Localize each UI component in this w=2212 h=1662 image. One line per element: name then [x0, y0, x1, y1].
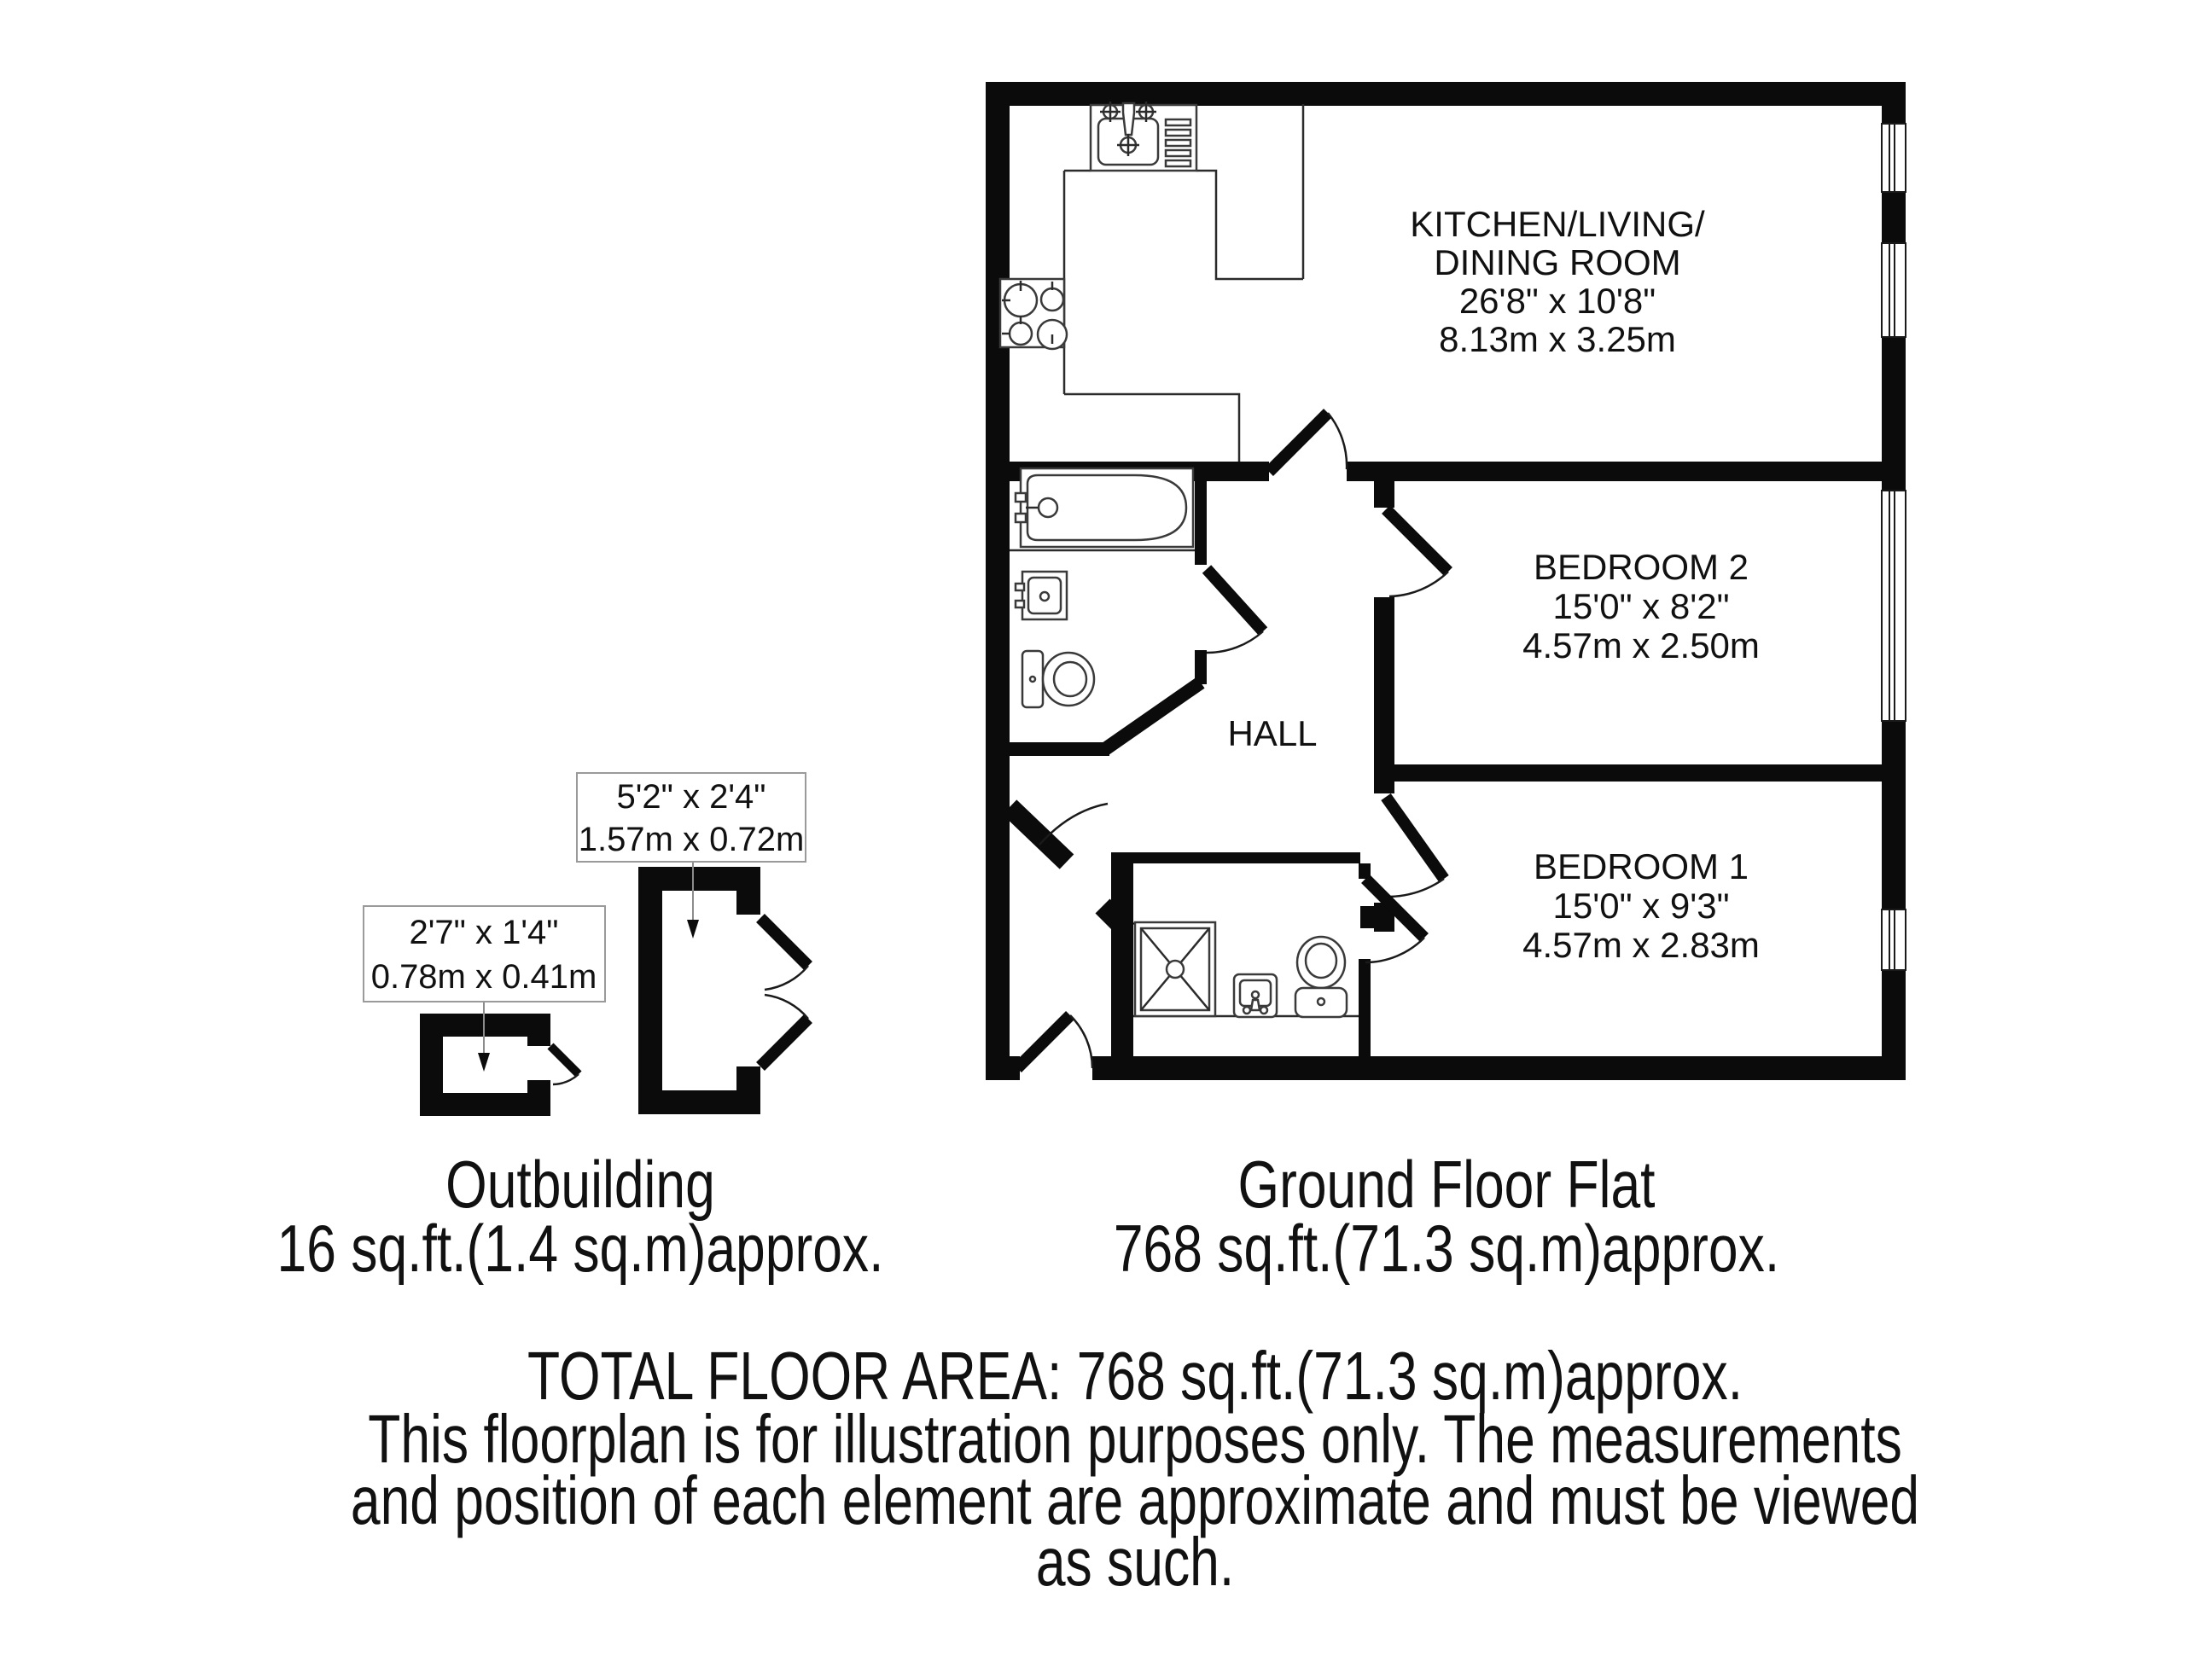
kitchen-dim-imperial: 26'8" x 10'8": [1459, 281, 1656, 321]
wall-right-seg4: [1882, 721, 1906, 909]
bedroom2-label: BEDROOM 2: [1534, 547, 1749, 587]
bedroom2-wall-upper: [1374, 481, 1394, 508]
shower-room-top-wall: [1122, 852, 1360, 863]
bathroom-door-leaf: [1207, 569, 1263, 631]
bath-drain: [1039, 498, 1057, 517]
toilet-bowl-inner: [1054, 662, 1086, 696]
window-icon: [1882, 909, 1906, 970]
counter-edge-5: [1064, 394, 1239, 462]
hob-burner: [1041, 288, 1063, 311]
sink-drainer-bars: [1166, 119, 1190, 166]
bathroom-sink-icon: [1016, 572, 1067, 619]
disclaimer-line3: as such.: [1036, 1525, 1234, 1601]
window-icon: [1882, 491, 1906, 721]
drainer-bar: [1166, 160, 1190, 166]
shower-room-left-wall: [1111, 852, 1133, 1058]
kitchen-label-line1: KITCHEN/LIVING/: [1410, 204, 1705, 244]
counter-edge-3: [1196, 171, 1303, 279]
footer-text-block: TOTAL FLOOR AREA: 768 sq.ft.(71.3 sq.m)a…: [351, 1339, 1919, 1601]
drainer-bar: [1166, 140, 1190, 146]
drainer-bar: [1166, 119, 1190, 125]
entrance-door-leaf: [1017, 1015, 1070, 1068]
bathroom-fixtures: [1010, 468, 1195, 707]
sink-drain: [1252, 991, 1259, 998]
entrance-door-icon: [1017, 1015, 1092, 1068]
wall-bottom: [1092, 1056, 1906, 1080]
kitchen-door-arc: [1328, 413, 1347, 469]
shower-room-right-wall-lower: [1359, 959, 1371, 1058]
wall-bottom-stub: [986, 1056, 1020, 1080]
outb-large-top-wall: [638, 867, 760, 891]
drainer-bar: [1166, 150, 1190, 156]
bedroom2-door-arc: [1389, 572, 1448, 596]
bath-tap: [1016, 493, 1026, 502]
leader-arrowhead: [478, 1053, 490, 1072]
shower-room-door-arc: [1365, 938, 1424, 962]
kitchen-dim-metric: 8.13m x 3.25m: [1439, 319, 1676, 359]
outb-small-dim-imperial: 2'7" x 1'4": [410, 914, 559, 951]
outb-large-bottom-wall: [638, 1090, 760, 1114]
sink-tap-dot: [1260, 1007, 1267, 1014]
wall-right-seg1: [1882, 82, 1906, 124]
wall-right-seg3: [1882, 337, 1906, 491]
bathtub-icon: [1016, 468, 1193, 547]
toilet-button: [1030, 677, 1035, 682]
bedroom1-dim-metric: 4.57m x 2.83m: [1522, 925, 1760, 965]
hall-label: HALL: [1227, 713, 1317, 753]
floorplan-canvas: KITCHEN/LIVING/ DINING ROOM 26'8" x 10'8…: [0, 0, 2212, 1662]
bedroom-divider-wall: [1374, 764, 1882, 782]
hob-burner: [1010, 323, 1032, 345]
bathroom-door-icon: [1207, 569, 1263, 653]
outb-small-bottom-wall: [420, 1093, 550, 1116]
outb-door-arc-top: [765, 966, 808, 990]
shower-room-fixtures: [1133, 922, 1359, 1017]
outbuilding-plan: 5'2" x 2'4" 1.57m x 0.72m 2'7" x 1'4" 0.…: [364, 773, 808, 1116]
outbuilding-area: 16 sq.ft.(1.4 sq.m)approx.: [277, 1211, 884, 1285]
kitchen-sink-icon: [1091, 102, 1196, 171]
bedroom1-dim-imperial: 15'0" x 9'3": [1553, 886, 1730, 926]
kitchen-label-line2: DINING ROOM: [1434, 242, 1680, 282]
sink-tap: [1016, 584, 1024, 590]
outb-door-leaf-bottom: [760, 1019, 808, 1066]
callout-small: 2'7" x 1'4" 0.78m x 0.41m: [364, 906, 605, 1072]
hob-icon: [1000, 279, 1067, 349]
hall-diagonal-wall-upper: [1010, 807, 1067, 862]
bedroom1-wall-upper: [1374, 782, 1394, 793]
sink-tap: [1016, 601, 1024, 607]
outbuilding-large: [638, 867, 808, 1114]
sink-drain: [1040, 592, 1049, 601]
toilet-icon: [1022, 651, 1094, 707]
bathroom-bottom-wall: [1010, 742, 1109, 756]
bedroom2-door-icon: [1386, 509, 1448, 596]
wall-right-seg2: [1882, 192, 1906, 243]
sink-faucet: [1123, 103, 1134, 135]
window-icon: [1882, 243, 1906, 337]
outb-small-dim-metric: 0.78m x 0.41m: [371, 958, 597, 996]
door-icon: [550, 1046, 579, 1084]
bedroom1-door-leaf: [1386, 797, 1444, 879]
kitchen-door-icon: [1269, 413, 1347, 472]
bedroom2-dim-metric: 4.57m x 2.50m: [1522, 625, 1760, 665]
bedroom1-door-icon: [1386, 797, 1444, 897]
outb-large-left-wall: [638, 867, 662, 1114]
bedroom1-door-arc: [1389, 879, 1444, 897]
outb-large-dim-imperial: 5'2" x 2'4": [617, 778, 766, 816]
wall-right-seg5: [1882, 970, 1906, 1080]
bathroom-door-arc: [1207, 631, 1263, 653]
bedroom2-wall-lower: [1374, 597, 1394, 764]
outb-small-right-wall-lower: [527, 1080, 550, 1093]
sink-tap-dot: [1243, 1007, 1250, 1014]
kitchen-divider-right: [1347, 462, 1882, 481]
bedroom2-dim-imperial: 15'0" x 8'2": [1553, 586, 1730, 626]
flat-area: 768 sq.ft.(71.3 sq.m)approx.: [1114, 1211, 1779, 1285]
outbuilding-small: [420, 1014, 579, 1116]
bathroom-corner-diagonal-wall: [1105, 683, 1201, 749]
double-door-icon: [760, 918, 808, 1066]
outb-small-right-wall-upper: [527, 1037, 550, 1046]
toilet-bowl-inner: [1306, 944, 1336, 978]
ground-floor-flat-plan: KITCHEN/LIVING/ DINING ROOM 26'8" x 10'8…: [986, 82, 1906, 1080]
floorplan-page: KITCHEN/LIVING/ DINING ROOM 26'8" x 10'8…: [0, 0, 2212, 1662]
bath-tap: [1016, 514, 1026, 522]
shower-drain: [1167, 961, 1184, 978]
entrance-door-arc: [1070, 1015, 1092, 1068]
room-labels: KITCHEN/LIVING/ DINING ROOM 26'8" x 10'8…: [1227, 204, 1759, 965]
drainer-bar: [1166, 130, 1190, 136]
wall-left: [986, 82, 1010, 1080]
outb-door-leaf-top: [760, 918, 808, 966]
bedroom1-label: BEDROOM 1: [1534, 846, 1749, 886]
bedroom2-door-leaf: [1386, 509, 1448, 572]
leader-arrowhead: [687, 920, 699, 939]
captions: Outbuilding 16 sq.ft.(1.4 sq.m)approx. G…: [277, 1147, 1780, 1285]
shower-toilet-icon: [1295, 937, 1347, 1017]
callout-large: 5'2" x 2'4" 1.57m x 0.72m: [577, 773, 806, 939]
outb-large-dim-metric: 1.57m x 0.72m: [579, 821, 805, 858]
outb-small-door-leaf: [550, 1046, 579, 1074]
toilet-button: [1318, 998, 1324, 1005]
outb-large-right-wall-lower: [736, 1066, 760, 1090]
shower-sink-icon: [1234, 974, 1277, 1017]
bathroom-right-wall-upper: [1195, 462, 1207, 565]
outb-large-right-wall-upper: [736, 891, 760, 915]
window-icon: [1882, 124, 1906, 192]
shower-tray-icon: [1135, 922, 1215, 1016]
sink-tap: [1251, 1000, 1260, 1010]
outb-door-arc-bottom: [765, 995, 808, 1019]
kitchen-door-leaf: [1269, 413, 1328, 472]
